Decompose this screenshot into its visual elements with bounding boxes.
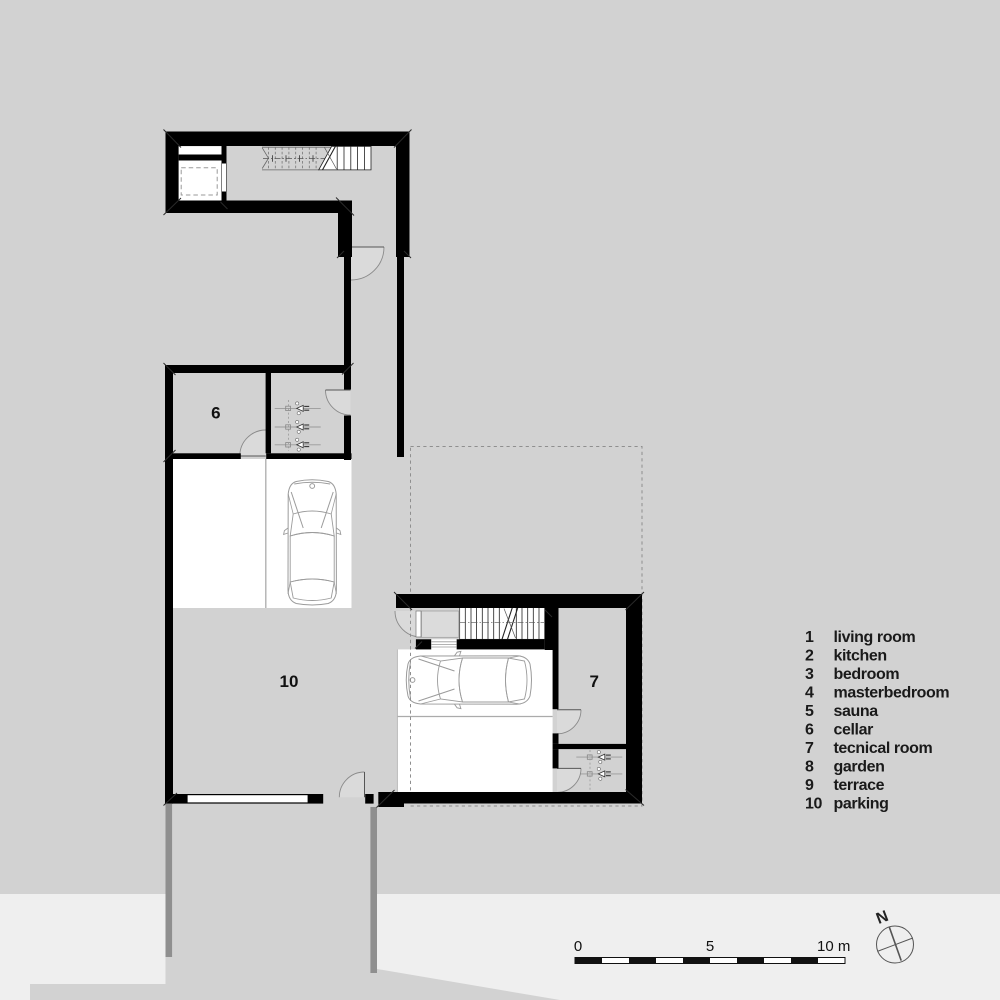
svg-text:living room: living room: [834, 629, 916, 646]
svg-text:5: 5: [706, 938, 714, 955]
svg-text:kitchen: kitchen: [834, 647, 887, 664]
svg-text:0: 0: [574, 938, 582, 955]
svg-text:6: 6: [211, 404, 220, 423]
svg-text:terrace: terrace: [834, 777, 885, 794]
svg-text:7: 7: [589, 672, 598, 691]
svg-text:2: 2: [805, 647, 814, 664]
svg-text:9: 9: [805, 777, 814, 794]
svg-text:sauna: sauna: [834, 703, 879, 720]
svg-text:masterbedroom: masterbedroom: [834, 684, 950, 701]
svg-text:cellar: cellar: [834, 721, 874, 738]
svg-text:tecnical room: tecnical room: [834, 740, 933, 757]
svg-text:10: 10: [280, 672, 299, 691]
svg-text:4: 4: [805, 684, 814, 701]
svg-text:5: 5: [805, 703, 814, 720]
svg-text:bedroom: bedroom: [834, 666, 900, 683]
svg-text:6: 6: [805, 721, 814, 738]
svg-text:1: 1: [805, 629, 814, 646]
svg-text:10: 10: [805, 795, 822, 812]
svg-text:garden: garden: [834, 758, 885, 775]
svg-text:3: 3: [805, 666, 814, 683]
svg-text:7: 7: [805, 740, 814, 757]
svg-text:10 m: 10 m: [817, 938, 850, 955]
svg-text:8: 8: [805, 758, 814, 775]
svg-text:parking: parking: [834, 795, 889, 812]
